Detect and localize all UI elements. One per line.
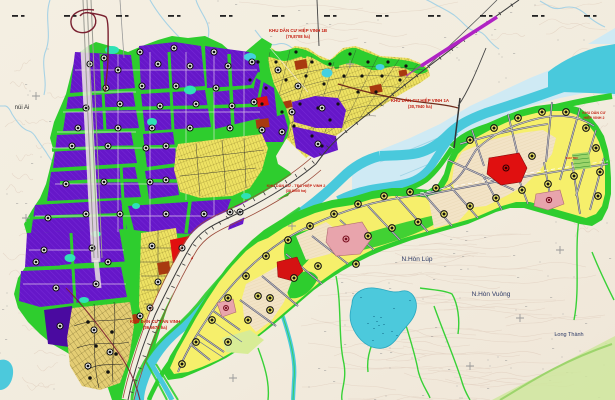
svg-text:KHU DÂN CƯ TÂN VINH: KHU DÂN CƯ TÂN VINH bbox=[130, 319, 180, 324]
svg-text:KHU DÂN CƯ: KHU DÂN CƯ bbox=[582, 110, 605, 115]
svg-text:HIỆP VINH 2: HIỆP VINH 2 bbox=[584, 115, 605, 120]
svg-text:(30,7940 ha): (30,7940 ha) bbox=[408, 104, 433, 109]
svg-text:KHU DÂN CƯ - TĐC HIỆP VINH 2: KHU DÂN CƯ - TĐC HIỆP VINH 2 bbox=[267, 183, 326, 188]
svg-text:(79,8708 ha): (79,8708 ha) bbox=[286, 34, 311, 39]
svg-text:(36,5678 ha): (36,5678 ha) bbox=[143, 325, 168, 330]
svg-text:KHU DÂN CƯ HIỆP VINH 1A: KHU DÂN CƯ HIỆP VINH 1A bbox=[391, 98, 450, 103]
svg-text:núi Ai: núi Ai bbox=[15, 105, 30, 111]
svg-text:Long Thành: Long Thành bbox=[554, 332, 583, 338]
svg-text:KHU DÂN CƯ HIỆP VINH 1B: KHU DÂN CƯ HIỆP VINH 1B bbox=[269, 28, 327, 33]
svg-text:KHU TĐC: KHU TĐC bbox=[566, 156, 579, 160]
svg-text:N.Hòn Vuông: N.Hòn Vuông bbox=[472, 291, 511, 298]
svg-text:(38,8905 ha): (38,8905 ha) bbox=[286, 189, 307, 193]
svg-text:N.Hòn Lúp: N.Hòn Lúp bbox=[401, 256, 432, 263]
